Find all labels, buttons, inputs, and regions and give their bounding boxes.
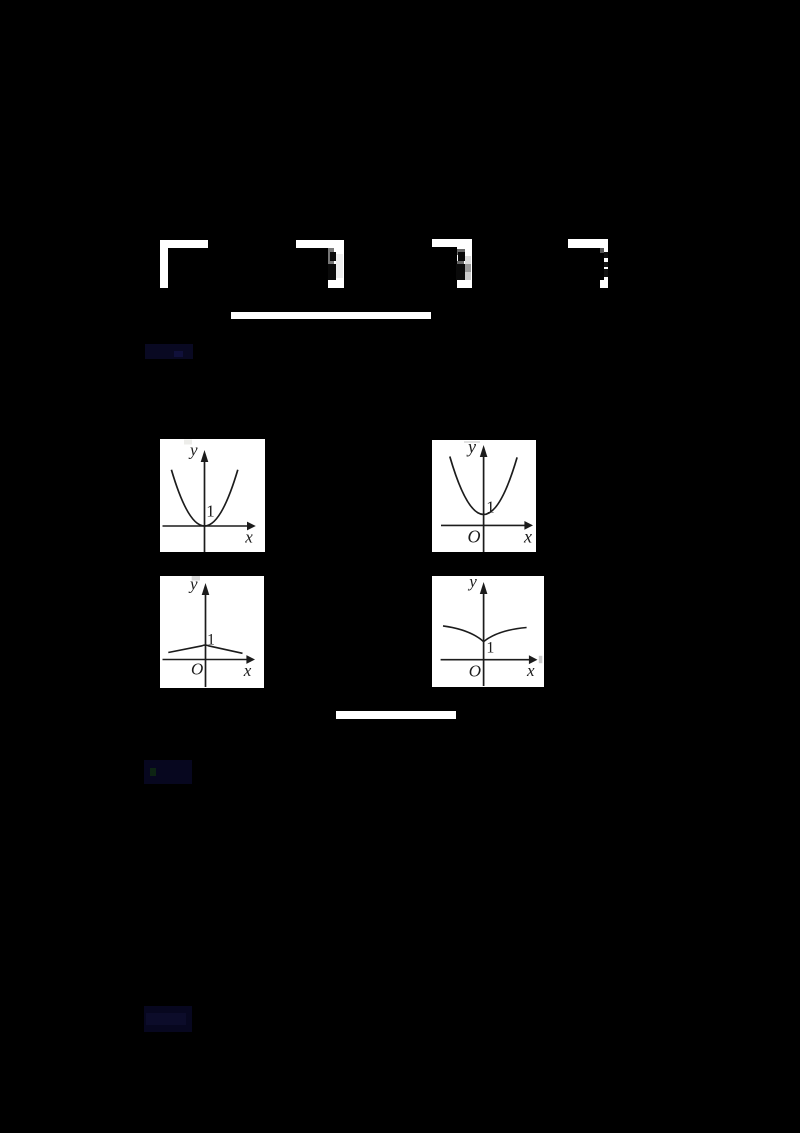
- svg-text:x: x: [526, 661, 535, 680]
- svg-text:y: y: [188, 441, 198, 460]
- svg-text:1: 1: [486, 640, 494, 657]
- svg-text:x: x: [244, 528, 253, 547]
- svg-text:y: y: [466, 440, 476, 457]
- svg-text:O: O: [191, 659, 203, 678]
- svg-text:y: y: [188, 576, 198, 594]
- svg-text:1: 1: [206, 502, 215, 521]
- svg-text:O: O: [469, 662, 481, 681]
- svg-text:1: 1: [486, 498, 495, 517]
- svg-text:x: x: [523, 526, 532, 546]
- svg-text:x: x: [243, 661, 252, 680]
- svg-text:y: y: [467, 576, 477, 591]
- svg-text:O: O: [468, 526, 481, 546]
- svg-text:1: 1: [207, 632, 215, 649]
